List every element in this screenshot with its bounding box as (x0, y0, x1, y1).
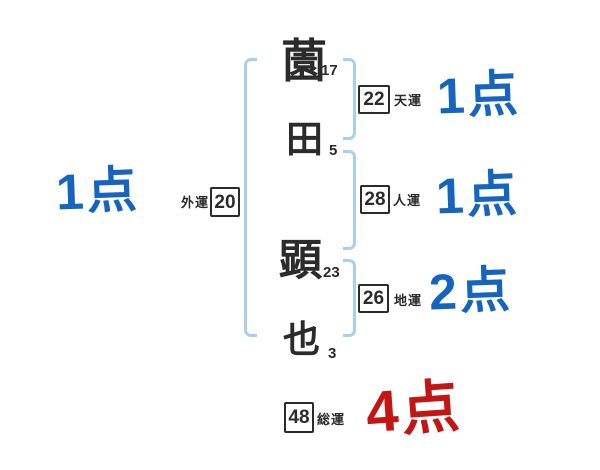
name-char-2: 田 (286, 121, 323, 158)
tenun-bracket (343, 58, 356, 140)
souun-score: 4点 (364, 378, 464, 443)
stroke-count-1: 17 (321, 63, 338, 78)
stroke-count-3: 23 (323, 265, 340, 280)
name-fortune-chart: 1点 外運 20 薗 17 田 5 顕 23 也 3 22 天運 1点 28 人… (0, 0, 600, 470)
gaiun-value-box: 20 (210, 187, 240, 217)
jinun-value-box: 28 (360, 185, 390, 214)
gaiun-score: 1点 (55, 165, 141, 218)
tenun-value-box: 22 (358, 85, 390, 114)
stroke-count-2: 5 (329, 143, 337, 158)
chiun-label: 地運 (394, 294, 422, 307)
jinun-bracket (343, 150, 356, 250)
stroke-count-4: 3 (328, 346, 336, 361)
chiun-score: 2点 (428, 265, 514, 318)
jinun-score: 1点 (435, 169, 521, 222)
name-char-3: 顕 (279, 240, 322, 283)
chiun-value-box: 26 (358, 284, 389, 313)
souun-label: 総運 (317, 413, 345, 426)
tenun-label: 天運 (394, 94, 422, 107)
name-char-4: 也 (283, 321, 320, 358)
chiun-bracket (343, 259, 356, 337)
souun-value-box: 48 (284, 402, 314, 433)
gaiun-label: 外運 (181, 196, 209, 209)
gaiun-bracket (244, 58, 257, 337)
jinun-label: 人運 (393, 194, 421, 207)
tenun-score: 1点 (436, 69, 522, 122)
